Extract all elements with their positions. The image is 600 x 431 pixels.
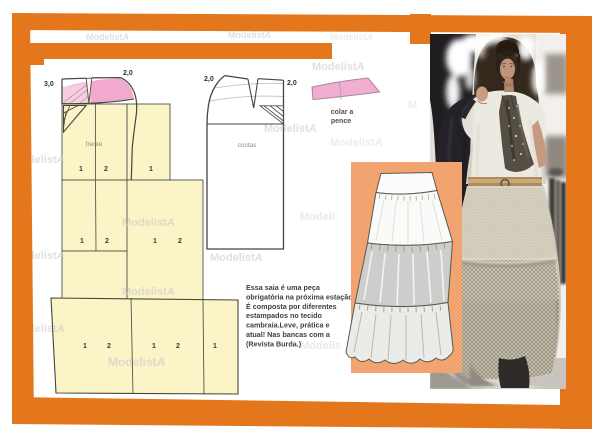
svg-text:3,0: 3,0 bbox=[44, 81, 54, 88]
svg-text:ModelistA: ModelistA bbox=[330, 32, 373, 42]
svg-text:2,0: 2,0 bbox=[204, 76, 214, 83]
svg-text:frente: frente bbox=[86, 141, 103, 148]
svg-text:ModelistA: ModelistA bbox=[330, 137, 383, 149]
svg-text:ModelistA: ModelistA bbox=[108, 355, 165, 369]
svg-text:2: 2 bbox=[104, 166, 108, 173]
svg-text:M: M bbox=[408, 99, 417, 111]
svg-text:2: 2 bbox=[176, 343, 180, 350]
svg-text:1: 1 bbox=[149, 166, 153, 173]
svg-text:1: 1 bbox=[213, 343, 217, 350]
svg-text:2: 2 bbox=[105, 238, 109, 245]
svg-text:Essa saia é uma peça: Essa saia é uma peça bbox=[246, 283, 321, 292]
svg-text:1: 1 bbox=[153, 238, 157, 245]
svg-text:costas: costas bbox=[238, 142, 258, 149]
svg-text:1: 1 bbox=[152, 343, 156, 350]
svg-text:1: 1 bbox=[83, 343, 87, 350]
svg-text:ModelistA: ModelistA bbox=[312, 61, 365, 73]
svg-text:ModelistA: ModelistA bbox=[122, 217, 175, 229]
svg-text:2: 2 bbox=[178, 238, 182, 245]
svg-text:1: 1 bbox=[80, 238, 84, 245]
svg-text:Modeli: Modeli bbox=[300, 211, 335, 223]
svg-text:2: 2 bbox=[107, 343, 111, 350]
svg-text:ModelistA: ModelistA bbox=[210, 252, 263, 264]
svg-text:2,0: 2,0 bbox=[123, 70, 133, 77]
svg-text:estampados no tecido: estampados no tecido bbox=[246, 311, 322, 320]
svg-text:Modelis: Modelis bbox=[300, 340, 341, 352]
svg-text:É composta por diferentes: É composta por diferentes bbox=[246, 302, 337, 311]
svg-text:ModelistA: ModelistA bbox=[264, 123, 317, 135]
svg-text:2,0: 2,0 bbox=[287, 80, 297, 87]
svg-text:1: 1 bbox=[79, 166, 83, 173]
svg-text:colar a: colar a bbox=[331, 109, 354, 116]
svg-text:atual! Nas bancas com a: atual! Nas bancas com a bbox=[246, 330, 331, 339]
svg-text:ModelistA: ModelistA bbox=[86, 32, 129, 42]
svg-text:cambraia.Leve, prática e: cambraia.Leve, prática e bbox=[246, 321, 330, 330]
svg-text:obrigatória na próxima estação: obrigatória na próxima estação bbox=[246, 292, 353, 301]
svg-text:ModelistA: ModelistA bbox=[228, 30, 271, 40]
svg-text:(Revista Burda.): (Revista Burda.) bbox=[246, 339, 302, 348]
svg-text:ModelistA: ModelistA bbox=[122, 286, 175, 298]
svg-text:pence: pence bbox=[331, 118, 351, 125]
